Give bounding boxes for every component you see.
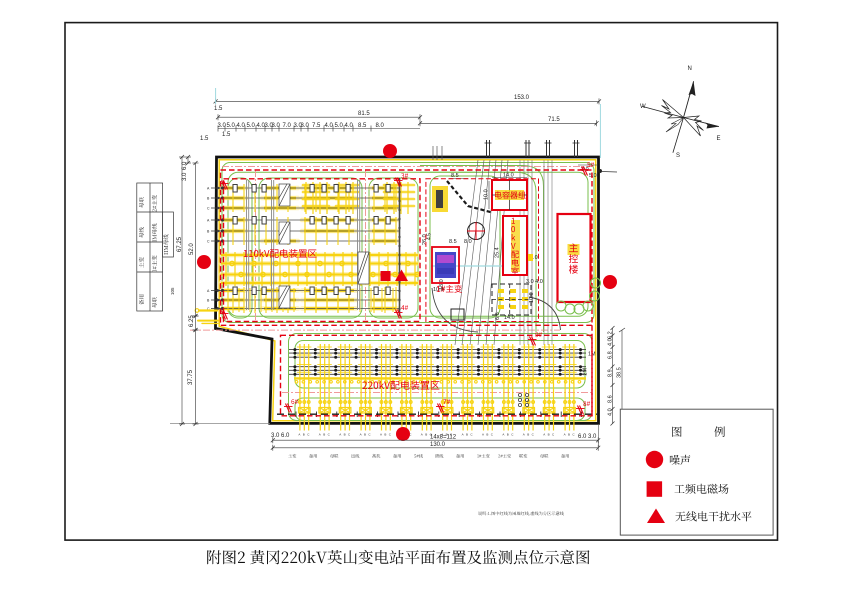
svg-text:71.5: 71.5 (548, 117, 560, 123)
svg-text:6.25: 6.25 (189, 315, 195, 327)
svg-text:3.0 6.0: 3.0 6.0 (271, 433, 290, 439)
svg-text:52.0: 52.0 (189, 243, 195, 255)
svg-text:81.5: 81.5 (358, 111, 370, 117)
svg-text:A: A (523, 433, 525, 437)
svg-text:3.0 4.0: 3.0 4.0 (526, 279, 543, 285)
svg-text:8.0: 8.0 (376, 123, 385, 129)
svg-text:5.0: 5.0 (589, 173, 597, 179)
svg-text:7.5: 7.5 (312, 123, 321, 129)
svg-text:8.0: 8.0 (464, 239, 472, 245)
svg-text:105: 105 (170, 287, 175, 295)
svg-text:1.5: 1.5 (222, 132, 231, 138)
svg-text:B: B (466, 433, 468, 437)
svg-text:6.6: 6.6 (495, 312, 501, 320)
svg-text:8.5: 8.5 (449, 239, 457, 245)
svg-text:25.4: 25.4 (495, 247, 501, 258)
svg-text:4.0: 4.0 (608, 408, 614, 416)
svg-text:4.0: 4.0 (345, 123, 354, 129)
svg-text:A: A (462, 433, 464, 437)
svg-text:14.0: 14.0 (503, 173, 514, 179)
svg-text:B: B (323, 433, 325, 437)
svg-text:B: B (486, 433, 488, 437)
svg-text:153.0: 153.0 (514, 95, 530, 101)
svg-text:10.0: 10.0 (529, 292, 535, 303)
svg-text:6.0 3.0: 6.0 3.0 (578, 434, 597, 440)
svg-text:E: E (717, 136, 721, 142)
svg-text:130.0: 130.0 (430, 442, 446, 448)
svg-text:B: B (364, 433, 366, 437)
svg-text:B: B (548, 433, 550, 437)
svg-text:7.0: 7.0 (283, 123, 292, 129)
svg-text:38.5: 38.5 (617, 367, 623, 378)
svg-text:14x8=112: 14x8=112 (430, 435, 457, 441)
svg-text:1.5: 1.5 (214, 106, 223, 112)
svg-text:A: A (482, 433, 484, 437)
svg-text:B: B (303, 433, 305, 437)
svg-text:B: B (527, 433, 529, 437)
svg-text:W: W (640, 104, 646, 110)
svg-text:A: A (421, 433, 423, 437)
svg-text:14.0: 14.0 (504, 315, 515, 321)
svg-text:B: B (384, 433, 386, 437)
svg-text:37.75: 37.75 (188, 369, 194, 385)
svg-text:B: B (568, 433, 570, 437)
svg-text:5.0: 5.0 (247, 123, 256, 129)
svg-text:4.0: 4.0 (608, 338, 614, 346)
svg-text:4.5: 4.5 (427, 233, 433, 240)
svg-text:A: A (339, 433, 341, 437)
svg-text:A: A (502, 433, 504, 437)
svg-text:A: A (564, 433, 566, 437)
svg-text:5.0: 5.0 (335, 123, 344, 129)
svg-text:67.25: 67.25 (177, 236, 183, 252)
svg-text:10.0: 10.0 (484, 189, 490, 200)
svg-text:8.6: 8.6 (608, 395, 614, 403)
svg-text:4.0: 4.0 (325, 123, 334, 129)
svg-text:S: S (676, 153, 680, 159)
svg-text:8.5: 8.5 (451, 173, 459, 179)
svg-text:6.2: 6.2 (608, 331, 614, 339)
svg-text:A: A (543, 433, 545, 437)
svg-text:5.0: 5.0 (227, 123, 236, 129)
svg-text:2M: 2M (583, 367, 589, 375)
svg-text:B: B (425, 433, 427, 437)
svg-text:4.0: 4.0 (237, 123, 246, 129)
svg-text:B: B (344, 433, 346, 437)
svg-text:B: B (507, 433, 509, 437)
svg-text:6.8: 6.8 (608, 351, 614, 359)
svg-text:A: A (360, 433, 362, 437)
svg-text:1.5: 1.5 (200, 136, 209, 142)
svg-text:N: N (688, 66, 692, 72)
svg-text:A: A (298, 433, 300, 437)
svg-text:3.0: 3.0 (182, 172, 188, 181)
svg-text:8.5: 8.5 (358, 123, 367, 129)
svg-text:A: A (380, 433, 382, 437)
svg-text:6.0: 6.0 (182, 161, 188, 170)
svg-text:A: A (319, 433, 321, 437)
svg-text:8.9: 8.9 (608, 369, 614, 377)
